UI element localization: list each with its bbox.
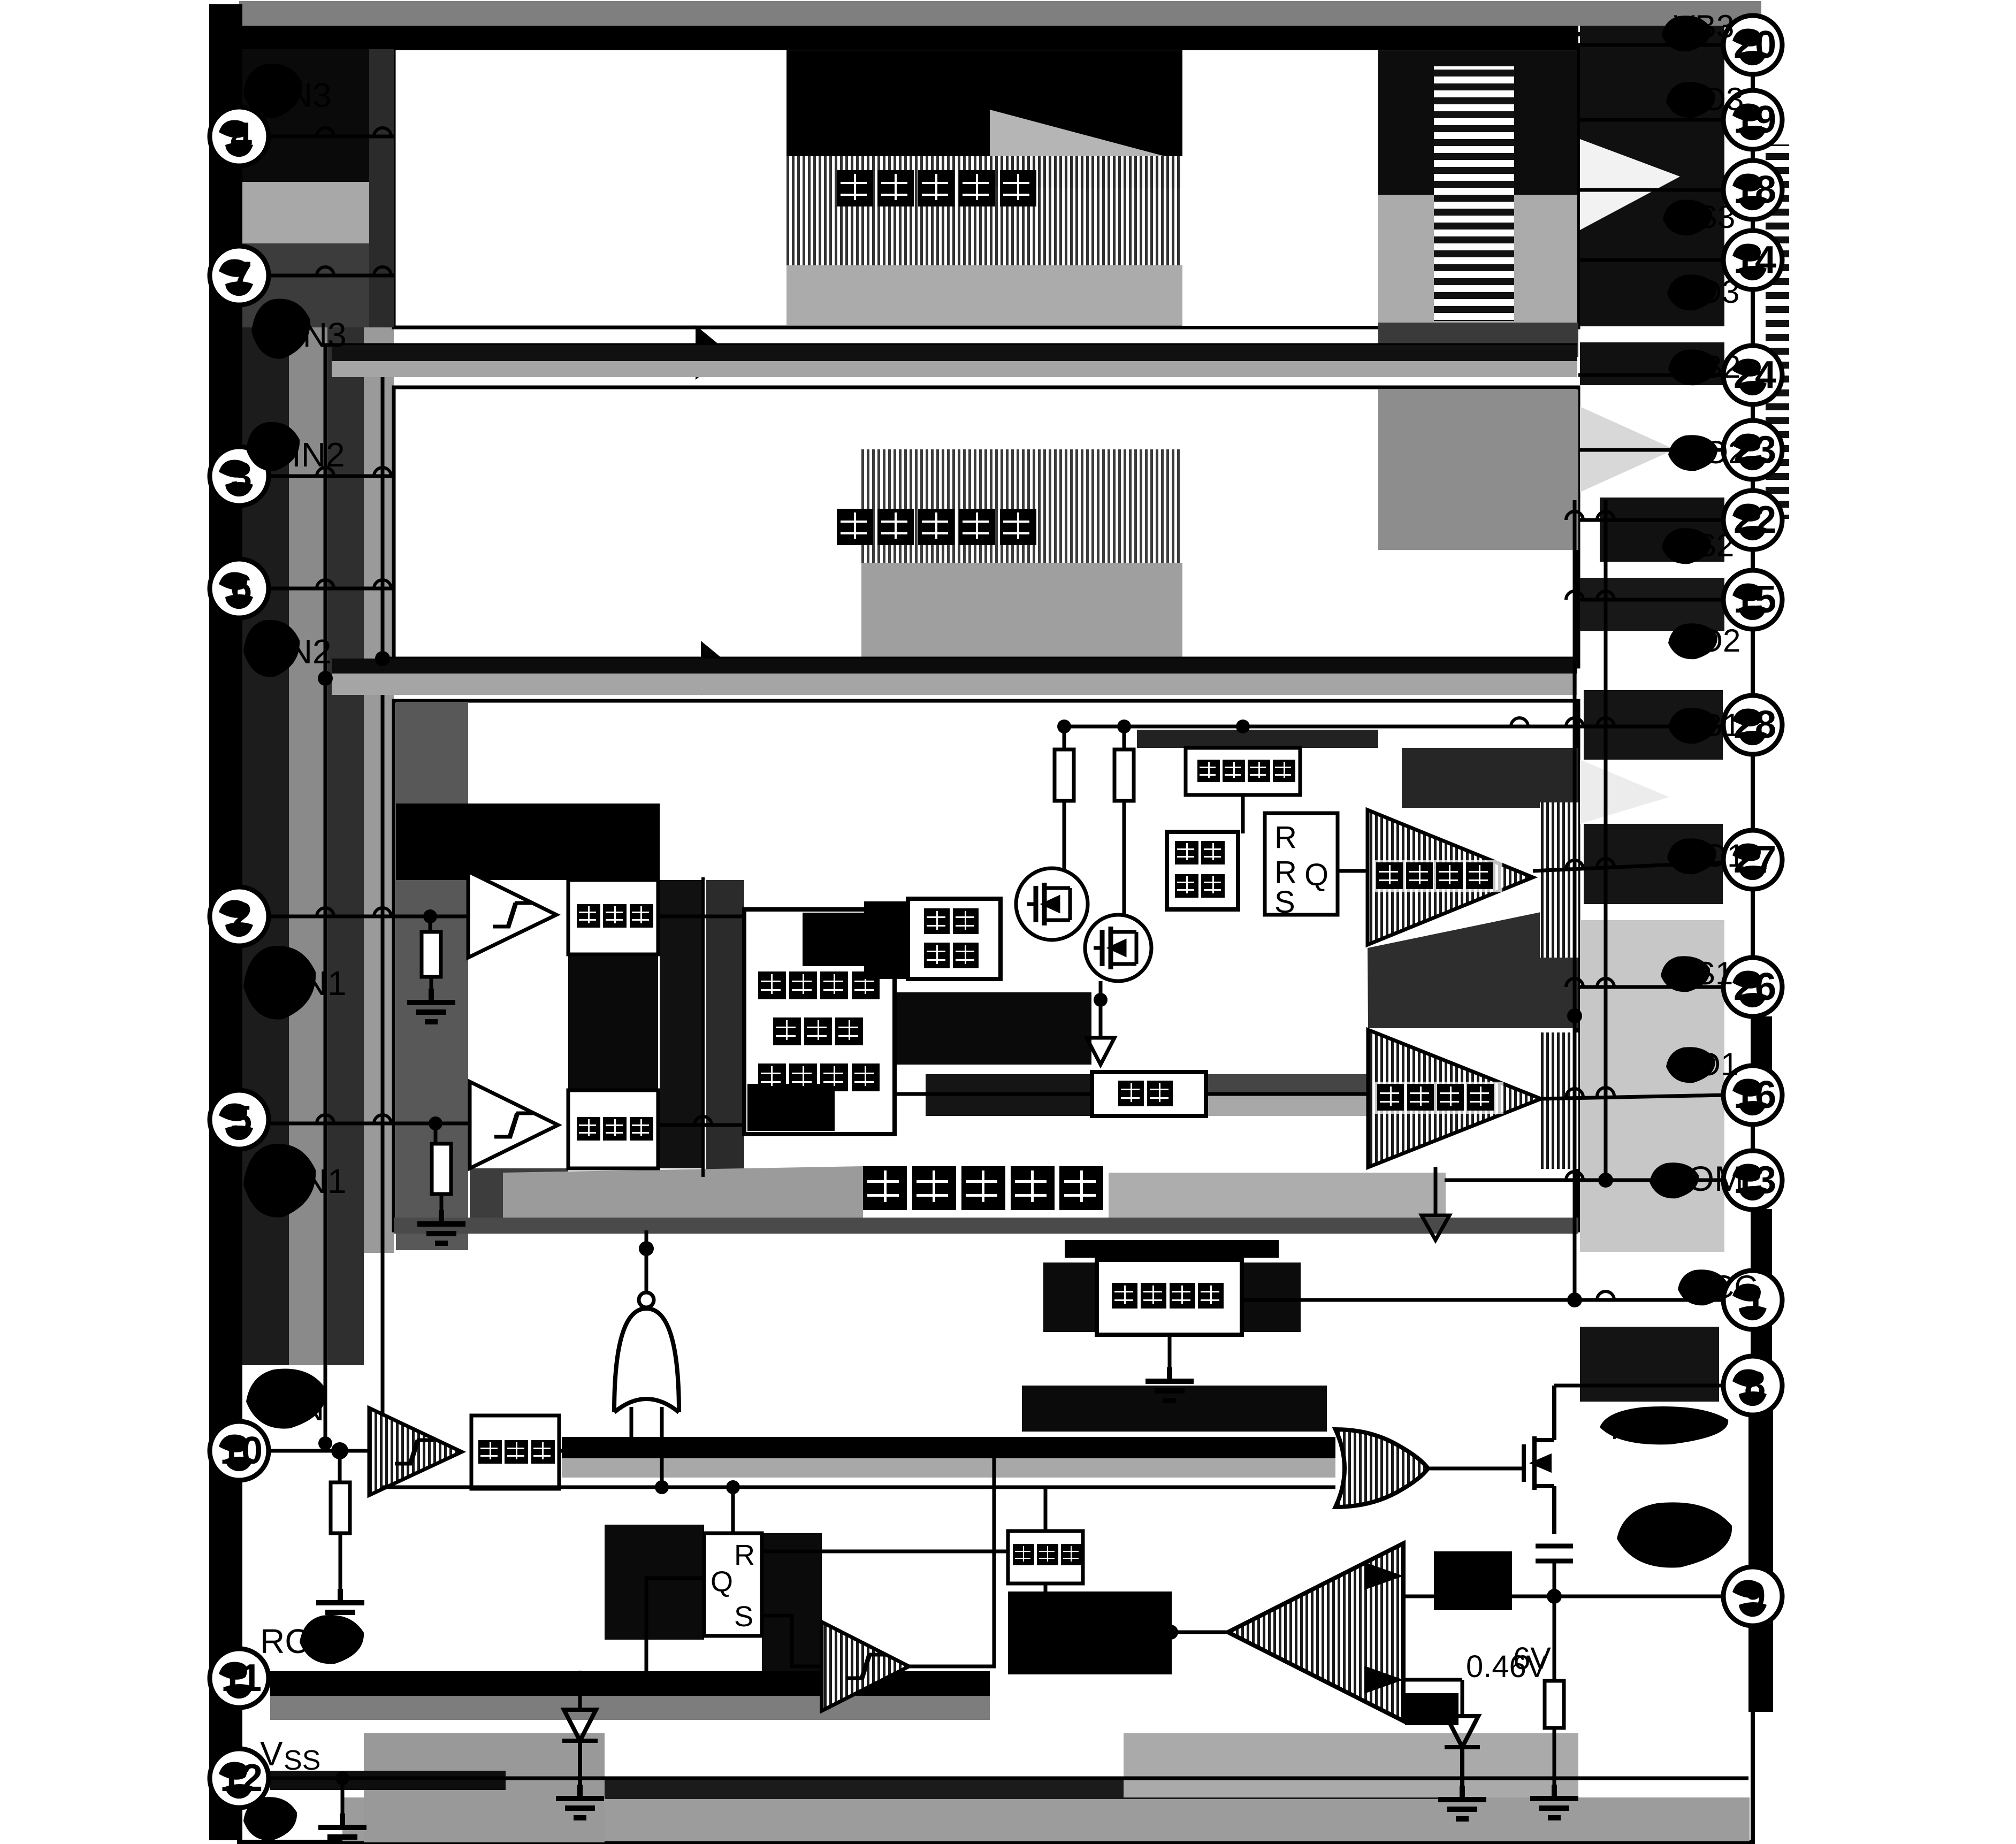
svg-text:VB2: VB2 [1680,349,1740,385]
svg-text:VS1: VS1 [1673,955,1733,991]
svg-text:9: 9 [1744,1575,1766,1618]
svg-text:IN2: IN2 [292,435,345,474]
svg-text:S: S [734,1601,753,1633]
svg-text:S: S [1274,885,1295,920]
svg-text:6V: 6V [1513,1641,1551,1676]
svg-text:ITRIP: ITRIP [1626,1522,1708,1558]
svg-text:2: 2 [231,895,252,938]
svg-text:22: 22 [1734,499,1776,541]
svg-text:HO1: HO1 [1679,838,1745,874]
svg-text:VS3: VS3 [1675,199,1735,235]
svg-text:6: 6 [231,567,252,610]
svg-text:HO3: HO3 [1678,81,1744,117]
svg-text:R: R [1274,820,1297,855]
svg-text:VB1: VB1 [1680,707,1740,743]
svg-text:IN2: IN2 [278,632,332,671]
svg-text:26: 26 [1734,966,1776,1008]
svg-text:10: 10 [220,1429,263,1472]
svg-text:IN3: IN3 [278,76,332,114]
svg-text:14: 14 [1734,239,1776,281]
svg-text:LO3: LO3 [1679,274,1739,310]
svg-text:VB3: VB3 [1674,9,1734,44]
svg-text:R: R [734,1539,755,1571]
svg-text:Q: Q [711,1566,733,1598]
svg-text:5: 5 [231,1098,252,1141]
svg-text:VS2: VS2 [1674,527,1734,563]
svg-text:VCC: VCC [1690,1269,1758,1305]
svg-text:RCIN: RCIN [260,1622,343,1661]
svg-text:3: 3 [231,455,252,498]
svg-text:4: 4 [231,115,252,158]
svg-text:8: 8 [1744,1364,1766,1407]
svg-text:12: 12 [220,1757,263,1800]
svg-text:COM: COM [1661,1159,1744,1198]
svg-text:IN1: IN1 [293,1162,347,1200]
svg-text:Q: Q [1304,858,1328,892]
svg-text:11: 11 [221,1657,262,1700]
svg-text:LO2: LO2 [1680,623,1740,659]
svg-text:IN3: IN3 [293,316,347,354]
svg-text:7: 7 [231,254,252,297]
svg-text:SS: SS [284,1745,320,1776]
svg-text:IN1: IN1 [293,964,347,1003]
svg-text:15: 15 [1734,578,1776,621]
svg-text:HO2: HO2 [1680,434,1746,470]
svg-text:V: V [260,1734,283,1773]
svg-text:LO1: LO1 [1678,1046,1738,1082]
svg-text:18: 18 [1734,169,1776,211]
svg-text:FAULT: FAULT [1610,1410,1708,1446]
svg-text:20: 20 [1734,24,1776,66]
svg-text:16: 16 [1734,1074,1776,1116]
svg-text:N: N [300,1389,324,1428]
